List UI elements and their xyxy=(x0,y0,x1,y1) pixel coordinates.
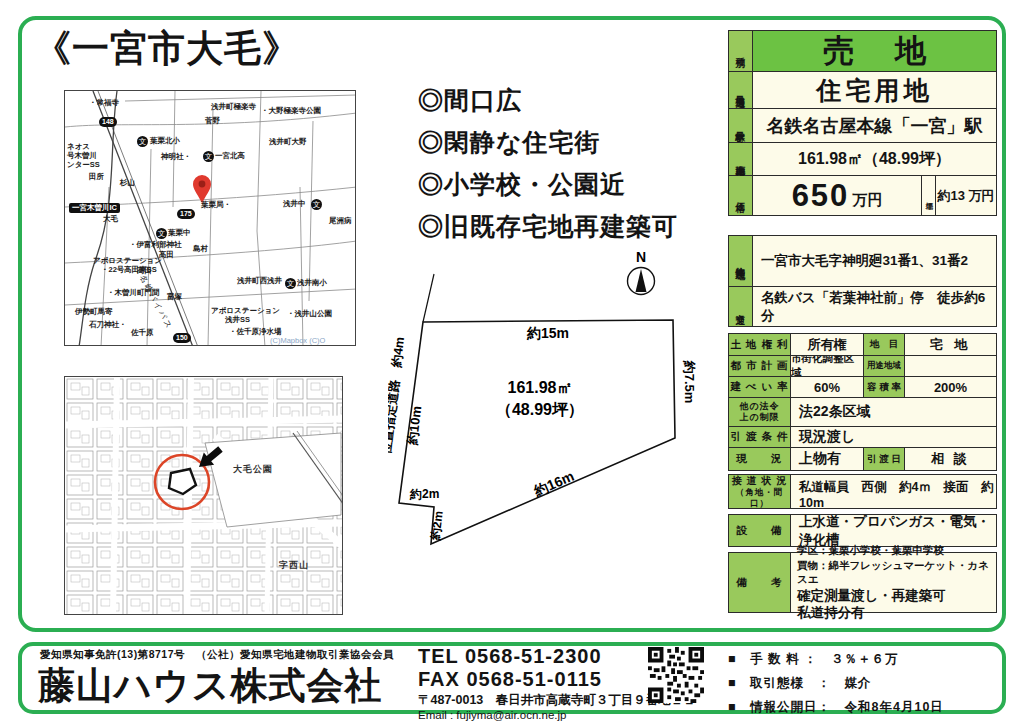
spec-block-utilities: 設 備 上水道・プロパンガス・電気・浄化槽 xyxy=(728,514,997,547)
list-item: 葉栗局・ xyxy=(201,201,231,209)
zoning xyxy=(905,356,996,376)
list-item: 一宮北高 xyxy=(215,152,245,160)
other-restrictions: 法22条区域 xyxy=(791,398,996,426)
plot-area-tsubo: （48.99坪） xyxy=(496,401,584,419)
list-item: ■ 手 数 料 ： ３％＋６万 xyxy=(728,651,944,668)
parcel-map: 大毛公園字西山 xyxy=(64,376,343,615)
list-item: 佐千原 xyxy=(131,329,154,337)
transport: 名鉄バス「若葉神社前」停 徒歩約6分 xyxy=(753,287,996,326)
list-item: 175 xyxy=(177,209,195,219)
current-status: 上物有 xyxy=(791,448,863,470)
table-row: 最適用途 住宅用地 xyxy=(729,71,996,108)
list-item: 一宮木曽川IC xyxy=(69,203,120,213)
list-item: ・浅井山公園 xyxy=(287,310,332,318)
list-item: 尾洲病 xyxy=(329,217,352,225)
table-row: 種別 売 地 xyxy=(729,31,996,71)
list-item: 浅井南小 xyxy=(297,279,327,287)
location-pin-icon xyxy=(193,175,211,203)
company-name: 藤山ハウス株式会社 xyxy=(38,661,383,711)
table-row: 引 渡 条 件 現況渡し xyxy=(729,426,996,447)
best-use: 住宅用地 xyxy=(753,72,996,108)
remarks: 学区：葉栗小学校・葉栗中学校 買物：綿半フレッシュマーケット・カネスエ 確定測量… xyxy=(791,553,996,612)
road-label: 位置指定道路 約4m xyxy=(388,336,407,456)
area-street-map: ・常福寺浅井町極楽寺・大野極楽寺公園菅野葉栗北小浅井町大野神明社・一宮北高ネオス… xyxy=(64,90,356,346)
dim-diagonal: 約16m xyxy=(531,468,577,500)
dim-notch-v: 約2m xyxy=(428,510,446,542)
property-spec-table: 種別 売 地 最適用途 住宅用地 最寄駅 名鉄名古屋本線「一宮」駅 土地面積 1… xyxy=(728,30,997,644)
table-row: 備 考 学区：葉栗小学校・葉栗中学校 買物：綿半フレッシュマーケット・カネスエ … xyxy=(729,553,996,612)
list-item: 富塚 xyxy=(167,293,182,301)
table-row: 都 市 計 画 市街化調整区域 用途地域 xyxy=(729,355,996,376)
list-item: 文 xyxy=(311,199,322,210)
list-item: 浅井中 xyxy=(283,200,306,208)
list-item: 菅野 xyxy=(205,117,220,125)
list-item: 神明社・ xyxy=(161,153,191,161)
table-row: 交通 名鉄バス「若葉神社前」停 徒歩約6分 xyxy=(729,286,996,326)
list-item: アポロステーション xyxy=(211,307,280,315)
list-item: 文 xyxy=(156,228,167,239)
dim-left: 約10m xyxy=(405,405,425,447)
list-item: 田所 xyxy=(89,173,104,181)
table-row: 土 地 権 利 所有権 地 目 宅 地 xyxy=(729,334,996,355)
table-row: 建 ぺ い 率 60% 容 積 率 200% xyxy=(729,376,996,397)
list-item: アポロステーション xyxy=(93,257,162,265)
list-item: (C)Mapbox (C)O xyxy=(270,337,325,345)
table-row: 価格 650 万円 坪単価 約13 万円 xyxy=(729,175,996,215)
list-item: 文 xyxy=(285,278,296,289)
list-item: 文 xyxy=(137,136,148,147)
qr-code xyxy=(648,647,704,703)
spec-block-legal: 土 地 権 利 所有権 地 目 宅 地 都 市 計 画 市街化調整区域 用途地域… xyxy=(728,333,997,471)
coverage-ratio: 60% xyxy=(791,377,863,397)
utilities: 上水道・プロパンガス・電気・浄化槽 xyxy=(791,515,996,546)
list-item: 148 xyxy=(99,117,117,127)
list-item: ・伊富利部神社 xyxy=(129,241,182,249)
spec-block-road: 接 道 状 況 （角地・間口） 私道幅員 西側 約4ｍ 接面 約10m xyxy=(728,474,997,509)
list-item: 杉山 xyxy=(120,179,135,187)
north-compass-icon: N xyxy=(628,249,655,295)
list-item: ◎間口広 xyxy=(418,84,678,117)
plot-area-sqm: 161.98㎡ xyxy=(508,379,573,396)
company-email: Email : fujiyma@air.ocn.ne.jp xyxy=(418,709,696,722)
list-item: ・佐千原浄水場 xyxy=(229,328,282,336)
spec-block-price: 種別 売 地 最適用途 住宅用地 最寄駅 名鉄名古屋本線「一宮」駅 土地面積 1… xyxy=(728,30,997,216)
list-item: 島村 xyxy=(193,245,208,253)
table-row: 土地面積 161.98㎡（48.99坪） xyxy=(729,142,996,175)
handover-date: 相 談 xyxy=(905,448,996,470)
list-item: 大毛公園 xyxy=(233,465,273,475)
land-rights: 所有権 xyxy=(791,334,863,355)
deal-terms: ■ 手 数 料 ： ３％＋６万■ 取引態様 ： 媒介■ 情報公開日： 令和8年4… xyxy=(728,651,944,723)
list-item: 150 xyxy=(173,333,191,343)
list-item: 石刀神社・ xyxy=(89,321,127,329)
land-plot-diagram: N 約15m 約7.5m 約16m 約10m 位置指定道路 約4m 約2m 約2… xyxy=(388,248,710,582)
list-item: ンターSS xyxy=(67,161,100,169)
table-row: 現 況 上物有 引 渡 日 相 談 xyxy=(729,447,996,470)
list-item: ■ 情報公開日： 令和8年4月10日 xyxy=(728,699,944,716)
table-row: 最寄駅 名鉄名古屋本線「一宮」駅 xyxy=(729,108,996,142)
list-item: 伊勢町馬寄 xyxy=(75,308,113,316)
tsubo-price-label: 坪単価 xyxy=(921,176,936,215)
road-access: 私道幅員 西側 約4ｍ 接面 約10m xyxy=(791,475,996,508)
price: 650 万円 xyxy=(753,176,921,215)
table-row: 物件所在地 一宮市大毛字神明廻31番1、31番2 xyxy=(729,236,996,286)
list-item: 大毛 xyxy=(103,215,118,223)
selling-points: ◎間口広◎閑静な住宅街◎小学校・公園近◎旧既存宅地再建築可 xyxy=(418,84,678,252)
city-planning: 市街化調整区域 xyxy=(791,356,863,376)
flyer-page: 《一宮市大毛》 xyxy=(0,0,1024,723)
list-item: 文 xyxy=(203,151,214,162)
land-area: 161.98㎡（48.99坪） xyxy=(753,143,996,175)
table-row: 他の法令 上の制限 法22条区域 xyxy=(729,397,996,426)
floor-area-ratio: 200% xyxy=(905,377,996,397)
property-address: 一宮市大毛字神明廻31番1、31番2 xyxy=(753,236,996,286)
dim-top: 約15m xyxy=(526,325,569,341)
list-item: 浅井町大野 xyxy=(269,138,307,146)
list-item: 葉栗北小 xyxy=(150,137,180,145)
parcel-map-drawing xyxy=(65,377,343,615)
dim-notch-h: 約2m xyxy=(409,487,439,501)
list-item: 字西山 xyxy=(279,561,309,571)
list-item: ◎小学校・公園近 xyxy=(418,168,678,201)
property-type: 売 地 xyxy=(753,31,996,71)
plot-outline xyxy=(399,320,675,544)
land-category: 宅 地 xyxy=(905,334,996,355)
list-item: ・大野極楽寺公園 xyxy=(261,107,321,115)
list-item: 浅井町極楽寺 xyxy=(211,103,256,111)
list-item: ◎閑静な住宅街 xyxy=(418,126,678,159)
page-title: 《一宮市大毛》 xyxy=(34,24,300,74)
table-row: 接 道 状 況 （角地・間口） 私道幅員 西側 約4ｍ 接面 約10m xyxy=(729,475,996,508)
list-item: 浅井SS xyxy=(225,316,250,324)
nearest-station: 名鉄名古屋本線「一宮」駅 xyxy=(753,109,996,142)
spec-block-remarks: 備 考 学区：葉栗小学校・葉栗中学校 買物：綿半フレッシュマーケット・カネスエ … xyxy=(728,552,997,613)
list-item: ネオス xyxy=(67,143,90,151)
spec-block-location: 物件所在地 一宮市大毛字神明廻31番1、31番2 交通 名鉄バス「若葉神社前」停… xyxy=(728,235,997,327)
tsubo-price: 約13 万円 xyxy=(936,176,996,215)
list-item: ◎旧既存宅地再建築可 xyxy=(418,210,678,243)
dim-right: 約7.5m xyxy=(682,360,697,404)
table-row: 設 備 上水道・プロパンガス・電気・浄化槽 xyxy=(729,515,996,546)
handover-condition: 現況渡し xyxy=(791,427,996,447)
list-item: ■ 取引態様 ： 媒介 xyxy=(728,675,944,692)
list-item: 号木曽川 xyxy=(67,152,97,160)
svg-text:N: N xyxy=(636,249,646,265)
list-item: 葉栗中 xyxy=(168,229,191,237)
list-item: 浅井町西浅井 xyxy=(237,277,282,285)
list-item: ・常福寺 xyxy=(89,99,119,107)
license-text: 愛知県知事免許(13)第8717号 （公社）愛知県宅地建物取引業協会会員 xyxy=(40,648,394,662)
